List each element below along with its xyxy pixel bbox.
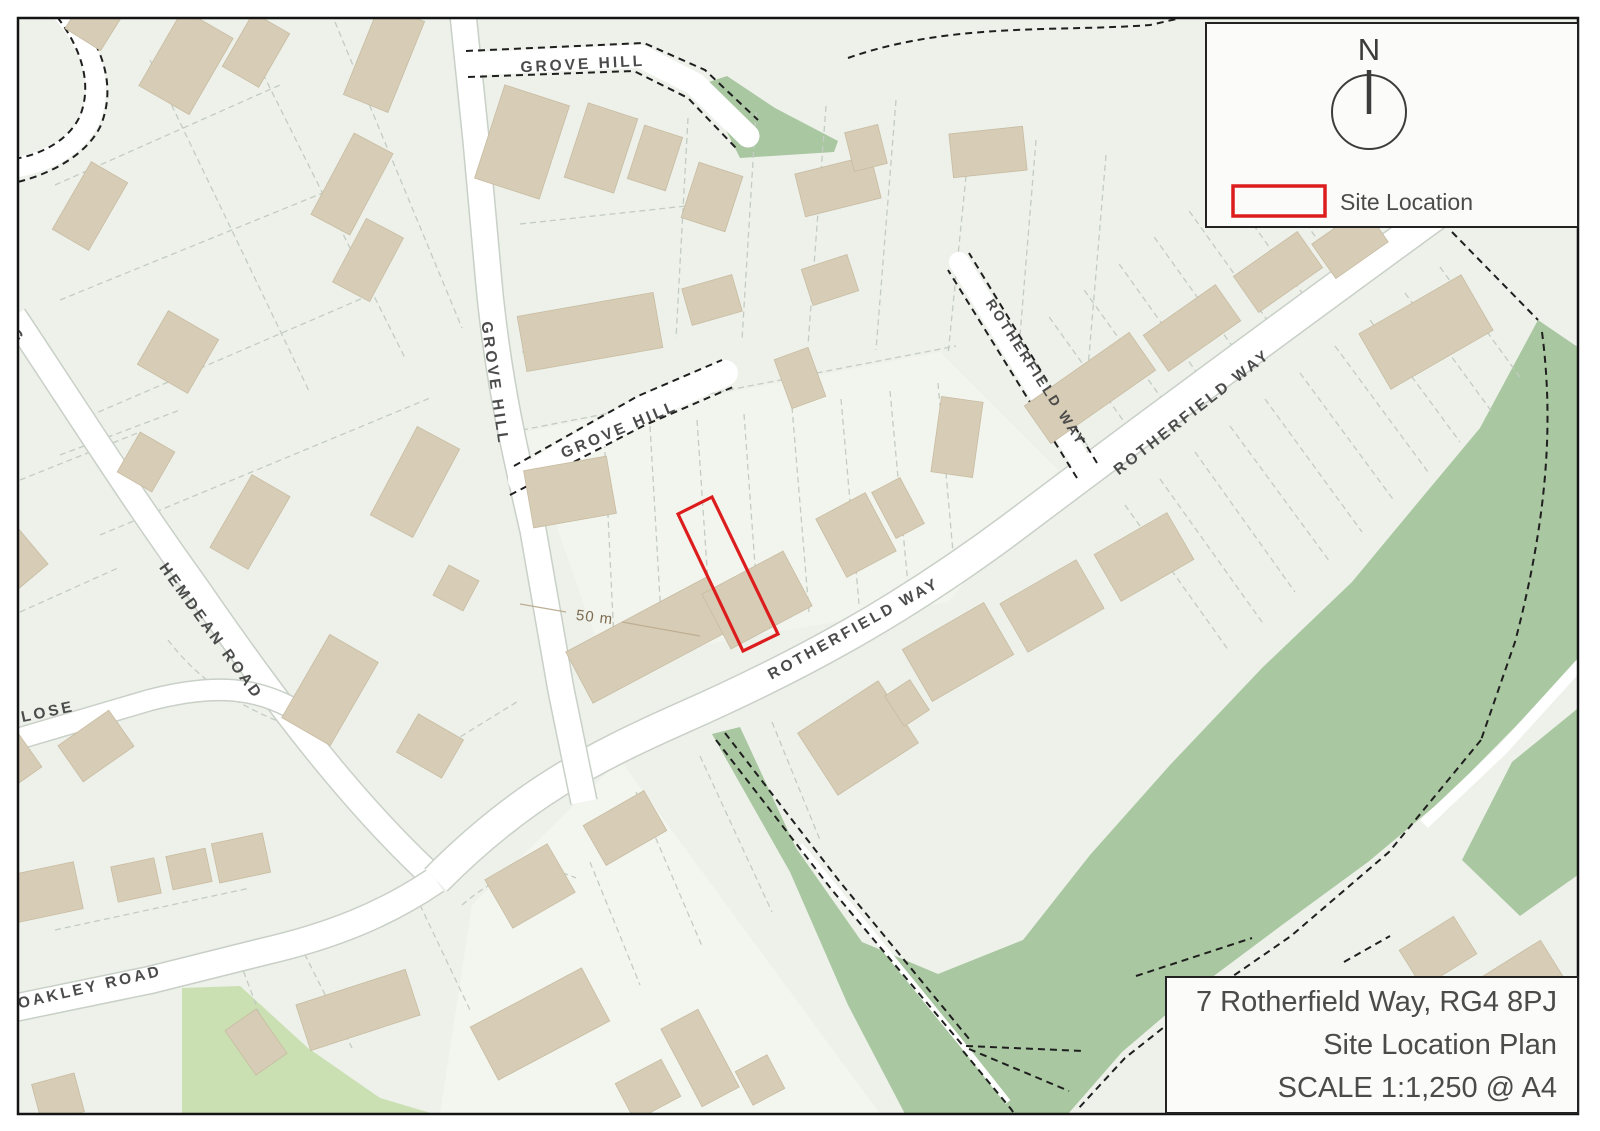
north-compass-icon (1332, 70, 1406, 149)
north-label: N (1358, 32, 1380, 67)
legend-content: N Site Location (1207, 24, 1577, 226)
legend-panel: N Site Location (1205, 22, 1579, 228)
site-location-plan-page: GROVE HILL GROVE HILL GROVE HILL ROTHERF… (0, 0, 1600, 1131)
title-block: 7 Rotherfield Way, RG4 8PJ Site Location… (1165, 976, 1579, 1114)
site-location-key-swatch (1233, 186, 1325, 216)
title-address: 7 Rotherfield Way, RG4 8PJ (1167, 981, 1557, 1024)
footpath-dashed (636, 4, 764, 16)
title-scale: SCALE 1:1,250 @ A4 (1167, 1067, 1557, 1110)
building (949, 126, 1027, 177)
title-plan-type: Site Location Plan (1167, 1024, 1557, 1067)
site-location-key-label: Site Location (1340, 189, 1473, 215)
